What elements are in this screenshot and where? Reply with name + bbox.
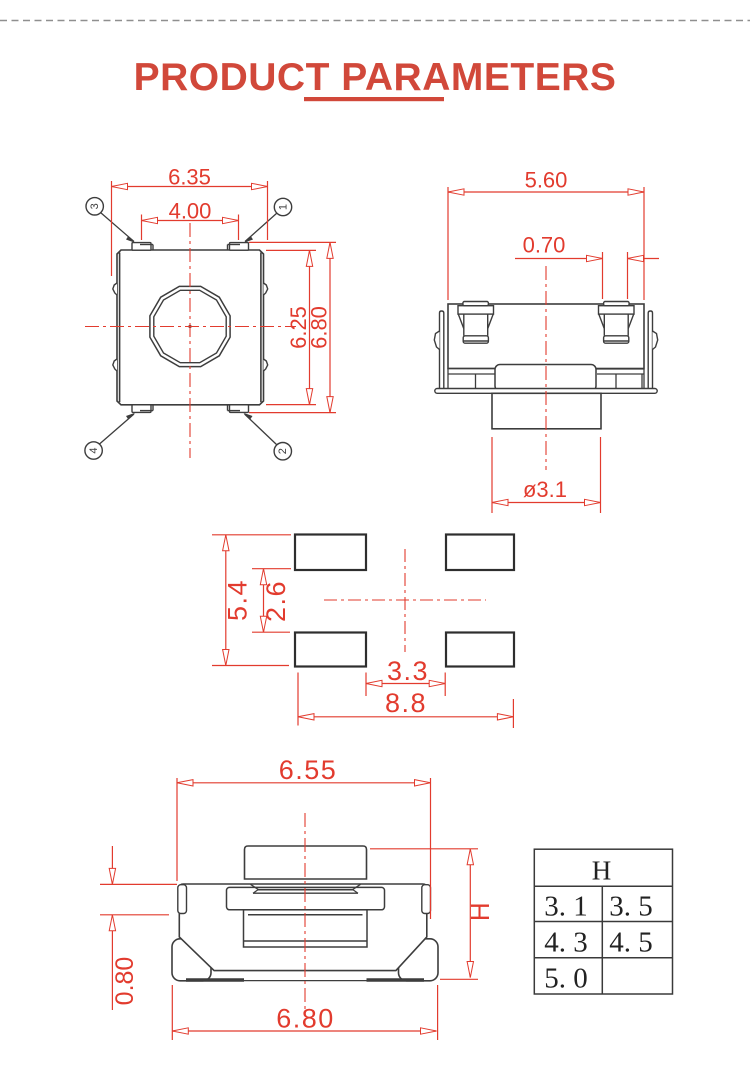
- svg-text:2: 2: [277, 448, 289, 454]
- svg-text:6.35: 6.35: [168, 165, 211, 190]
- svg-text:0.80: 0.80: [111, 957, 139, 1006]
- svg-text:6.55: 6.55: [279, 755, 338, 785]
- svg-text:3.3: 3.3: [387, 656, 429, 686]
- svg-text:4: 4: [88, 447, 100, 453]
- svg-text:3. 1: 3. 1: [544, 891, 588, 923]
- svg-text:6.80: 6.80: [276, 1004, 335, 1034]
- svg-text:H: H: [592, 856, 612, 886]
- svg-text:5. 0: 5. 0: [544, 963, 588, 995]
- svg-text:4.00: 4.00: [169, 199, 212, 224]
- svg-text:5.60: 5.60: [525, 168, 568, 193]
- svg-text:8.8: 8.8: [385, 688, 427, 718]
- svg-text:4. 3: 4. 3: [544, 927, 588, 959]
- svg-text:PRODUCT PARAMETERS: PRODUCT PARAMETERS: [134, 56, 617, 99]
- svg-text:0.70: 0.70: [523, 233, 566, 258]
- svg-text:1: 1: [277, 204, 289, 210]
- svg-text:2.6: 2.6: [261, 580, 291, 622]
- svg-text:H: H: [465, 901, 495, 921]
- svg-text:ø3.1: ø3.1: [523, 477, 567, 502]
- svg-text:3. 5: 3. 5: [609, 891, 653, 923]
- svg-text:5.4: 5.4: [223, 579, 253, 621]
- svg-text:4. 5: 4. 5: [609, 927, 653, 959]
- svg-text:6.80: 6.80: [307, 306, 332, 349]
- svg-text:3: 3: [89, 203, 101, 209]
